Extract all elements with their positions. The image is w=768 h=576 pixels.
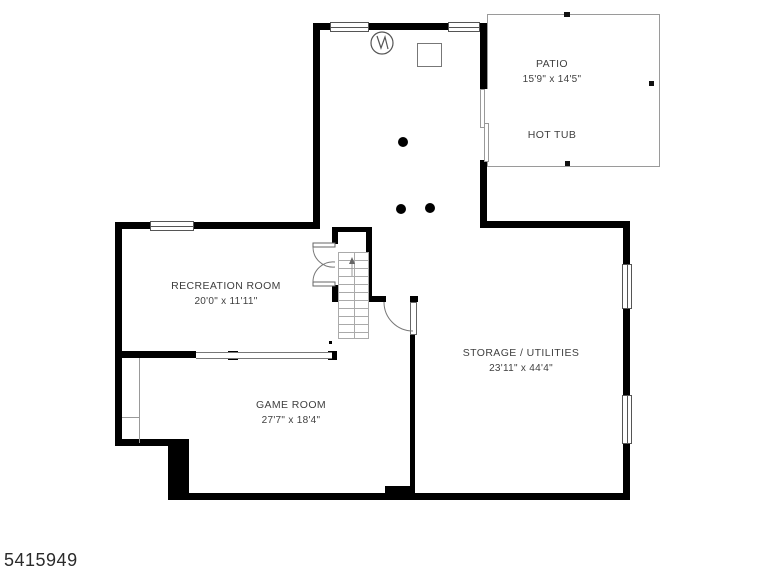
- wall-hall-left-stub: [366, 296, 386, 302]
- game-room-name: GAME ROOM: [201, 398, 381, 413]
- recreation-room-dims: 20'0" x 11'11": [136, 294, 316, 309]
- wall-game-bottom-left: [115, 439, 175, 446]
- patio-dims: 15'9" x 14'5": [482, 72, 622, 87]
- wall-divider-base: [385, 486, 415, 495]
- window-utility-top-1: [330, 22, 369, 32]
- window-storage-right-1: [622, 264, 632, 309]
- recreation-room-label: RECREATION ROOM 20'0" x 11'11": [136, 279, 316, 309]
- window-storage-right-2: [622, 395, 632, 444]
- double-door-swing-top: [313, 247, 335, 267]
- support-column-3: [425, 203, 435, 213]
- wall-storage-top: [483, 221, 630, 228]
- hot-tub-label: HOT TUB: [482, 128, 622, 143]
- wall-game-storage-divider: [410, 331, 415, 488]
- water-heater-zigzag-icon: [377, 36, 388, 49]
- window-utility-top-2: [448, 22, 480, 32]
- window-recreation: [150, 221, 194, 231]
- listing-id: 5415949: [4, 550, 78, 571]
- support-column-2: [396, 204, 406, 214]
- support-column-1: [398, 137, 408, 147]
- closet-line-horizontal: [122, 417, 140, 418]
- wall-stair-top: [332, 227, 368, 232]
- stair-end-dot: [329, 341, 332, 344]
- storage-utilities-label: STORAGE / UTILITIES 23'11" x 44'4": [431, 346, 611, 376]
- patio-outline: [487, 14, 660, 167]
- storage-utilities-dims: 23'11" x 44'4": [431, 361, 611, 376]
- game-room-door-leaf: [410, 302, 417, 335]
- patio-tick-bottom: [565, 161, 570, 166]
- wall-recreation-bottom: [115, 351, 196, 358]
- closet-line-vertical: [139, 358, 140, 443]
- game-room-dims: 27'7" x 18'4": [201, 413, 381, 428]
- floor-plan: PATIO 15'9" x 14'5" HOT TUB RECREATION R…: [0, 0, 768, 576]
- patio-label: PATIO 15'9" x 14'5": [482, 57, 622, 87]
- patio-tick-top: [564, 12, 570, 17]
- wall-step-out: [168, 439, 189, 500]
- patio-tick-right: [649, 81, 654, 86]
- wall-left: [115, 222, 122, 446]
- staircase: [338, 252, 369, 339]
- double-door-swing-bottom: [313, 262, 335, 282]
- wall-right-segment-3: [623, 441, 630, 500]
- game-room-label: GAME ROOM 27'7" x 18'4": [201, 398, 381, 428]
- hot-tub-name: HOT TUB: [482, 128, 622, 143]
- game-room-door-swing: [384, 302, 413, 331]
- half-wall-recreation: [196, 352, 332, 359]
- wall-right-segment-1: [623, 221, 630, 265]
- wall-recreation-top: [115, 222, 320, 229]
- hvac-unit-icon: [417, 43, 442, 67]
- patio-name: PATIO: [482, 57, 622, 72]
- wall-utility-right-lower: [480, 157, 487, 228]
- wall-utility-left: [313, 23, 320, 229]
- storage-utilities-name: STORAGE / UTILITIES: [431, 346, 611, 361]
- wall-right-segment-2: [623, 306, 630, 395]
- water-heater-icon: [371, 32, 393, 54]
- recreation-room-name: RECREATION ROOM: [136, 279, 316, 294]
